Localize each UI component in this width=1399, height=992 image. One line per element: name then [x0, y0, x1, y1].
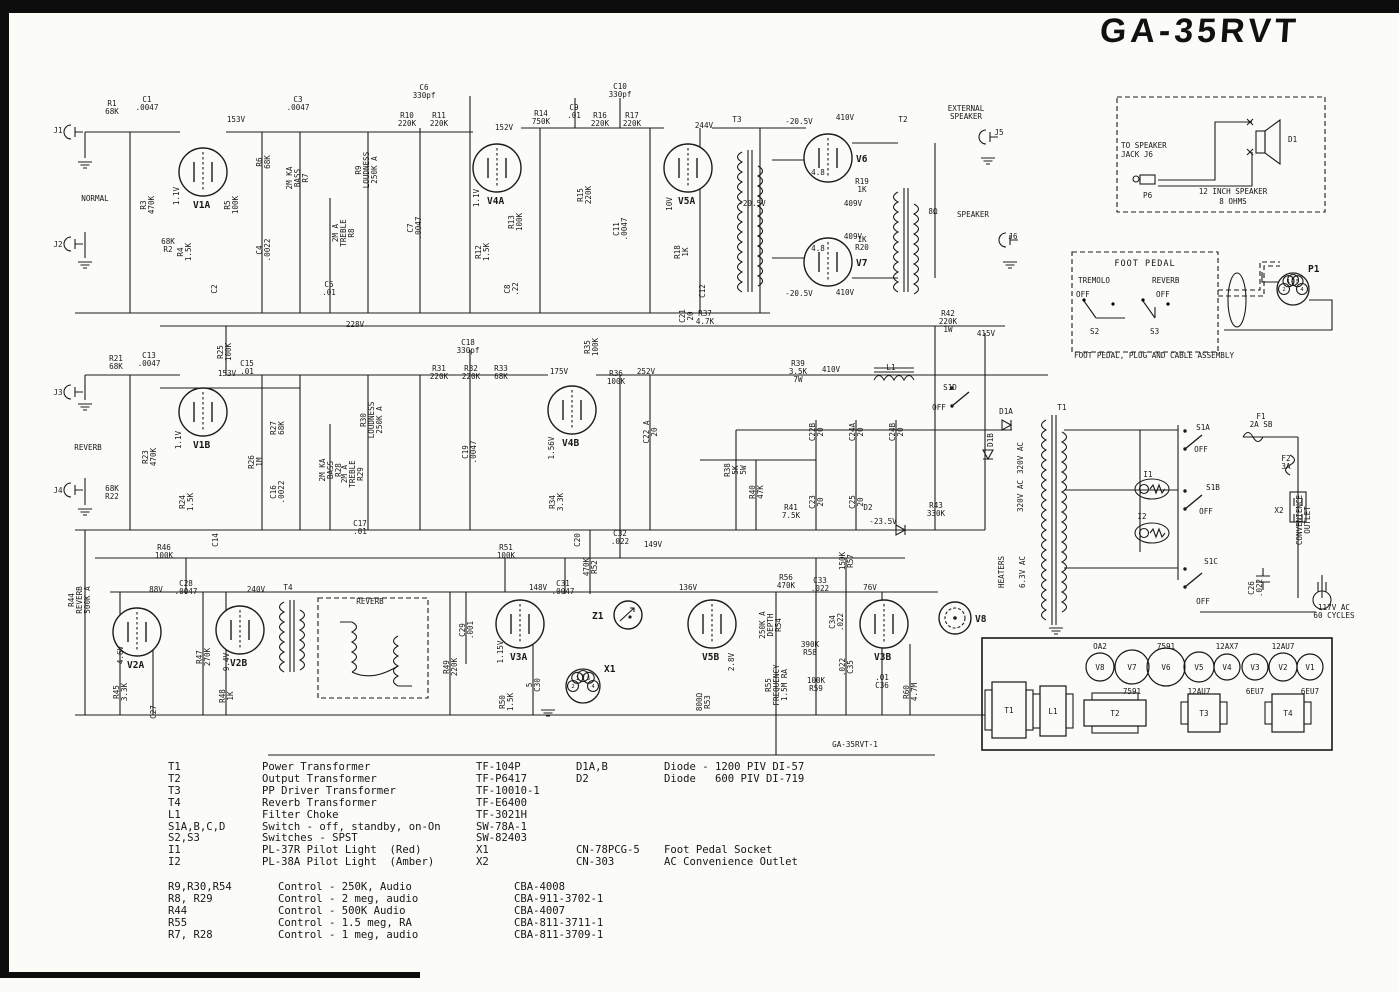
- component-label: R14750K: [532, 109, 551, 126]
- vacuum-tube: V3B: [860, 600, 908, 663]
- component-label: C31.0047: [552, 579, 575, 596]
- component-label: C4.0022: [255, 239, 272, 262]
- ground-icon: [78, 509, 92, 515]
- component-label: 4.6V: [116, 645, 125, 664]
- tremolo-off-label: OFF: [1076, 290, 1090, 299]
- socket-pin-number: 1: [576, 676, 579, 682]
- parts-list-cell: [576, 810, 664, 822]
- component-label: 470KR52: [582, 557, 599, 576]
- component-label: R46100K: [155, 543, 174, 560]
- component-label: 250K ADEPTHR54: [758, 611, 783, 639]
- speaker-plug-label: P6: [1143, 191, 1153, 200]
- component-label: J1: [53, 126, 63, 135]
- chassis-transformer-name: T1: [1004, 706, 1014, 715]
- socket-x1: 32154X1: [566, 664, 616, 703]
- component-label: 415V: [977, 329, 996, 338]
- coil-winding: [394, 636, 399, 686]
- jack-icon: [64, 125, 83, 139]
- component-label: L1: [886, 363, 896, 372]
- component-label: J4: [53, 486, 63, 495]
- component-label: 76V: [863, 583, 877, 592]
- parts-list-cell: I2: [168, 857, 262, 869]
- tube-label: V5B: [702, 652, 719, 663]
- chassis-tube-name: V2: [1278, 663, 1287, 672]
- component-label: C33.022: [811, 576, 829, 593]
- coil-winding: [738, 152, 743, 292]
- component-label: .022C35: [838, 658, 855, 676]
- parts-list-cell: TF-10010-1: [476, 786, 576, 798]
- socket-pin-number: 2: [1282, 287, 1285, 293]
- component-label: D2: [863, 503, 872, 512]
- component-label: S1D: [943, 383, 957, 392]
- chassis-tube: V412AX7: [1214, 642, 1240, 680]
- component-label: .01C36: [875, 673, 889, 690]
- component-label: 2M KABASSR7: [285, 166, 310, 189]
- component-label: R32220K: [462, 364, 481, 381]
- component-label: 2M ATREBLER29: [340, 460, 365, 488]
- component-label: C32.022: [611, 529, 629, 546]
- component-label: C24A20: [848, 422, 865, 441]
- tube-label: V1A: [193, 200, 210, 211]
- component-label: 320V AC: [1016, 442, 1025, 474]
- component-label: 1KR20: [855, 235, 869, 252]
- component-label: 2M ATREBLER8: [331, 219, 356, 247]
- chassis-tube-name: V3: [1250, 663, 1259, 672]
- component-label: R374.7K: [696, 309, 715, 326]
- switch-contact: [1183, 567, 1186, 570]
- component-label: 410V: [822, 365, 841, 374]
- parts-list-row: I2PL-38A Pilot Light (Amber)X2CN-303AC C…: [168, 857, 804, 869]
- chassis-tube-type: 12AU7: [1188, 687, 1211, 696]
- reverb-label: REVERB: [1152, 276, 1180, 285]
- component-label: OFF: [1199, 507, 1213, 516]
- component-label: R3368K: [494, 364, 508, 381]
- component-label: R10220K: [398, 111, 417, 128]
- wire-network: [75, 96, 1322, 755]
- component-label: C27: [149, 705, 158, 719]
- vacuum-tube: V8: [939, 602, 987, 634]
- component-label: C22B20: [808, 422, 825, 441]
- parts-list-cell: [576, 786, 664, 798]
- component-label: GA-35RVT-1: [832, 740, 878, 749]
- chassis-tube-type: 12AX7: [1216, 642, 1239, 651]
- diode-icon: [1002, 420, 1011, 430]
- chassis-tube: V36EU7: [1242, 654, 1268, 696]
- component-label: C5.01: [322, 280, 336, 297]
- component-label: T3: [732, 115, 741, 124]
- speaker-note-line2: JACK J6: [1121, 150, 1153, 159]
- foot-pedal-box: FOOT PEDAL TREMOLO REVERB OFF OFF S2 S3 …: [1072, 252, 1332, 360]
- component-label: 240V: [247, 585, 266, 594]
- component-label: 4.8: [811, 168, 825, 177]
- component-label: 410V: [836, 288, 855, 297]
- component-label: C1.0047: [136, 95, 159, 112]
- component-label: R16220K: [591, 111, 610, 128]
- cable-icon: [1228, 273, 1246, 327]
- chassis-tube-type: 12AU7: [1272, 642, 1295, 651]
- controls-list-cell: CBA-811-3709-1: [514, 930, 603, 942]
- component-label: 148V: [529, 583, 548, 592]
- component-label: R43330K: [927, 501, 946, 518]
- ground-icon: [78, 162, 92, 168]
- parts-list-cell: D2: [576, 774, 664, 786]
- tube-label: V4A: [487, 196, 504, 207]
- parts-list-cell: [664, 822, 804, 834]
- component-label: 5C30: [525, 678, 542, 692]
- component-label: C17.01: [353, 519, 367, 536]
- component-label: R41.5K: [176, 242, 193, 261]
- controls-list-cell: CBA-4007: [514, 906, 603, 918]
- component-label: C2: [210, 284, 219, 293]
- parts-list-row: L1Filter ChokeTF-3021H: [168, 810, 804, 822]
- socket-pin-number: 2: [571, 684, 574, 690]
- parts-list-cell: TF-3021H: [476, 810, 576, 822]
- speaker-note-line1: TO SPEAKER: [1121, 141, 1167, 150]
- component-label: C34.022: [828, 613, 845, 631]
- component-label: C18330pf: [457, 338, 480, 355]
- component-label: D1A: [999, 407, 1013, 416]
- component-label: -20.5V: [738, 199, 766, 208]
- component-label: REVERB: [74, 443, 102, 452]
- chassis-tube-type: 7591: [1123, 687, 1142, 696]
- parts-list-cell: Reverb Transformer: [262, 798, 476, 810]
- speaker-assembly-box: TO SPEAKER JACK J6 P6 D1 12 INCH SPEAKER…: [1117, 97, 1325, 212]
- parts-list-cell: [664, 798, 804, 810]
- component-label: 4.8: [811, 244, 825, 253]
- component-label: R42220K1W: [939, 309, 958, 334]
- foot-pedal-caption: FOOT PEDAL, PLUG AND CABLE ASSEMBLY: [1074, 351, 1234, 360]
- component-label: 1.15V: [496, 640, 505, 663]
- tube-label: V2A: [127, 660, 144, 671]
- component-label: 152V: [495, 123, 514, 132]
- component-label: 409V: [844, 199, 863, 208]
- tube-label: Z1: [592, 611, 604, 622]
- component-label: R181K: [673, 245, 690, 259]
- component-label: R36100K: [607, 369, 626, 386]
- component-label: R35100K: [583, 337, 600, 356]
- ground-icon: [981, 158, 995, 164]
- chassis-tube: V212AU7: [1269, 642, 1297, 681]
- component-label: 68KR2: [161, 237, 175, 254]
- chassis-transformer-name: T2: [1110, 709, 1119, 718]
- component-label: C29.001: [458, 620, 475, 639]
- tube-label: V8: [975, 614, 987, 625]
- chassis-tube-name: V8: [1095, 663, 1105, 672]
- component-label: OFF: [1194, 445, 1208, 454]
- parts-list-cell: I1: [168, 845, 262, 857]
- component-label: R453.3K: [112, 682, 129, 701]
- component-label: C16.0022: [269, 481, 286, 504]
- controls-list-cell: R44: [168, 906, 278, 918]
- socket-pin-number: 1: [1287, 279, 1290, 285]
- tube-label: V7: [856, 258, 867, 269]
- controls-list-row: R55Control - 1.5 meg, RACBA-811-3711-1: [168, 918, 603, 930]
- chassis-transformer: T4: [1265, 694, 1311, 732]
- controls-list-cell: CBA-811-3711-1: [514, 918, 603, 930]
- component-label: C13.0047: [138, 351, 161, 368]
- component-label: 88V: [149, 585, 163, 594]
- component-label: R168K: [105, 99, 119, 116]
- component-label: C2320: [808, 495, 825, 509]
- component-label: 6.3V AC: [1018, 556, 1027, 588]
- component-label: 228V: [346, 320, 365, 329]
- coil-winding: [352, 622, 357, 672]
- tube-label: V3A: [510, 652, 527, 663]
- parts-list-cell: CN-303: [576, 857, 664, 869]
- parts-list-cell: T4: [168, 798, 262, 810]
- component-label: C24B20: [888, 422, 905, 441]
- component-label: C2120: [678, 309, 695, 323]
- component-label: R2768K: [269, 421, 286, 435]
- component-label: T2: [898, 115, 907, 124]
- component-label: J5: [994, 128, 1003, 137]
- chassis-tube-type: 6EU7: [1246, 687, 1264, 696]
- switch-s2-label: S2: [1090, 327, 1099, 336]
- component-label: NORMAL: [81, 194, 109, 203]
- component-label: OFF: [932, 403, 946, 412]
- parts-list-cell: [576, 798, 664, 810]
- socket-label: X1: [604, 664, 616, 675]
- jack-icon: [64, 385, 83, 399]
- component-label: R23470K: [141, 447, 158, 466]
- component-label: C19.0047: [461, 441, 478, 464]
- chassis-tube: V67591: [1147, 642, 1185, 686]
- parts-list-cell: Diode 600 PIV DI-719: [664, 774, 804, 786]
- chassis-tube: V16EU7: [1297, 654, 1323, 696]
- component-label: 68KR22: [105, 484, 119, 501]
- component-label: 2.8V: [727, 652, 736, 671]
- component-label: C10330pf: [609, 82, 632, 99]
- parts-list-cell: S2,S3: [168, 833, 262, 845]
- parts-list-cell: [576, 822, 664, 834]
- component-label: 410V: [836, 113, 855, 122]
- component-label: C9.01: [567, 103, 581, 120]
- speaker-spec2: 8 OHMS: [1219, 197, 1247, 206]
- parts-list-cell: [664, 810, 804, 822]
- component-label: R501.5K: [498, 692, 515, 711]
- switch-contact: [1183, 489, 1186, 492]
- coil-winding: [894, 192, 899, 292]
- controls-list-cell: R7, R28: [168, 930, 278, 942]
- ground-icon: [78, 404, 92, 410]
- coil-winding: [300, 610, 305, 670]
- component-label: R191K: [855, 177, 869, 194]
- component-label: R121.5K: [474, 242, 491, 261]
- controls-list-cell: Control - 1 meg, audio: [278, 930, 514, 942]
- parts-list: T1Power TransformerTF-104PD1A,BDiode - 1…: [168, 762, 804, 869]
- component-label: S1B: [1206, 483, 1220, 492]
- component-label: R2168K: [109, 354, 123, 371]
- chassis-transformer-name: L1: [1048, 707, 1058, 716]
- component-label: S1C: [1204, 557, 1218, 566]
- switch-lever: [952, 392, 969, 406]
- tremolo-label: TREMOLO: [1078, 276, 1110, 285]
- component-label: CONVENIENCEOUTLET: [1295, 494, 1312, 545]
- component-label: C11.0047: [612, 218, 629, 241]
- component-label: C28.0047: [175, 579, 198, 596]
- ground-icon: [78, 262, 92, 268]
- jack-plug-icon: [1140, 175, 1155, 184]
- component-label: 252V: [637, 367, 656, 376]
- chassis-tube-type: OA2: [1093, 642, 1107, 651]
- parts-list-cell: SW-82403: [476, 833, 576, 845]
- chassis-tube-type: 7591: [1157, 642, 1176, 651]
- controls-list-cell: R55: [168, 918, 278, 930]
- component-label: R4047K: [748, 485, 765, 499]
- component-label: X2: [1274, 506, 1283, 515]
- component-label: EXTERNALSPEAKER: [948, 104, 985, 121]
- parts-list-cell: Filter Choke: [262, 810, 476, 822]
- component-label: I2: [1137, 512, 1146, 521]
- component-label: R11220K: [430, 111, 449, 128]
- jack-icon: [64, 483, 83, 497]
- chassis-tube-name: V5: [1194, 663, 1203, 672]
- component-label: D1B: [986, 433, 995, 447]
- switch-s3-label: S3: [1150, 327, 1159, 336]
- component-label: 136V: [679, 583, 698, 592]
- component-label: R51100K: [497, 543, 516, 560]
- component-label: R25100K: [216, 342, 233, 361]
- component-label: SPEAKER: [957, 210, 989, 219]
- controls-list-row: R44Control - 500K AudioCBA-4007: [168, 906, 603, 918]
- vacuum-tube: V1A: [179, 148, 227, 211]
- component-label: 150KR57: [838, 551, 855, 570]
- chassis-tube: V512AU7: [1184, 652, 1214, 696]
- component-label: -20.5V: [785, 289, 813, 298]
- component-label: -20.5V: [785, 117, 813, 126]
- component-label: R17220K: [623, 111, 642, 128]
- switch-lever: [1185, 573, 1202, 587]
- jack-icon: [64, 237, 83, 251]
- component-label: 1.56V: [547, 436, 556, 459]
- component-label: R9LOUDNESS250K A: [354, 151, 379, 188]
- socket-p1: 32154P1: [1277, 264, 1320, 305]
- component-label: J2: [53, 240, 62, 249]
- component-label: C22 A20: [642, 420, 659, 443]
- chassis-layout-box: V8OA2V77591V67591V512AU7V412AX7V36EU7V21…: [982, 638, 1332, 750]
- controls-list-cell: Control - 500K Audio: [278, 906, 514, 918]
- coil-winding: [874, 376, 914, 381]
- coil-winding: [280, 602, 285, 672]
- component-label: C15.01: [240, 359, 254, 376]
- component-label: R55FREQUENCY1.5M RA: [764, 664, 789, 706]
- coil-winding: [914, 204, 919, 294]
- controls-list-cell: Control - 1.5 meg, RA: [278, 918, 514, 930]
- speaker-icon: [1256, 131, 1265, 153]
- component-label: C3.0047: [287, 95, 310, 112]
- component-label: 153V: [218, 369, 237, 378]
- controls-list: R9,R30,R54Control - 250K, AudioCBA-4008R…: [168, 882, 603, 942]
- tube-label: V1B: [193, 440, 210, 451]
- parts-list-cell: T3: [168, 786, 262, 798]
- component-label: R15220K: [576, 185, 593, 204]
- parts-list-cell: PP Driver Transformer: [262, 786, 476, 798]
- component-label: I1: [1143, 470, 1153, 479]
- tube-label: V6: [856, 154, 868, 165]
- parts-list-cell: X1: [476, 845, 576, 857]
- component-label: -23.5V: [869, 517, 897, 526]
- tube-label: V4B: [562, 438, 579, 449]
- component-label: OFF: [1196, 597, 1210, 606]
- coil-winding: [1062, 432, 1067, 612]
- component-label: 1.1V: [472, 188, 481, 207]
- component-label: 175V: [550, 367, 569, 376]
- component-label: C20: [573, 533, 582, 547]
- chassis-tube-name: V7: [1127, 663, 1136, 672]
- component-label: F23A: [1281, 454, 1291, 471]
- component-label: 320V AC: [1016, 480, 1025, 512]
- switch-contact: [1183, 429, 1186, 432]
- component-label: R604.7M: [902, 682, 919, 701]
- component-label: J6: [1008, 232, 1018, 241]
- component-label: R31220K: [430, 364, 449, 381]
- component-label: C7.0047: [406, 217, 423, 240]
- component-label: T4: [283, 583, 293, 592]
- parts-list-cell: X2: [476, 857, 576, 869]
- component-label: R481K: [218, 689, 235, 703]
- chassis-tube-name: V1: [1305, 663, 1315, 672]
- component-label: C8.22: [503, 282, 520, 296]
- tube-label: V5A: [678, 196, 695, 207]
- chassis-transformer: T3: [1181, 694, 1227, 732]
- speaker-spec1: 12 INCH SPEAKER: [1199, 187, 1268, 196]
- chassis-transformer-name: T3: [1199, 709, 1208, 718]
- chassis-tube: V77591: [1115, 650, 1149, 696]
- component-label: 153V: [227, 115, 246, 124]
- component-label: S1A: [1196, 423, 1210, 432]
- ground-icon: [1003, 262, 1017, 268]
- component-label: R417.5K: [782, 503, 801, 520]
- chassis-tube-name: V4: [1222, 663, 1232, 672]
- component-label: 10V: [665, 197, 674, 211]
- chassis-transformer-name: T4: [1283, 709, 1293, 718]
- parts-list-cell: D1A,B: [576, 762, 664, 774]
- schematic-page: GA-35RVT V1AV4AV5AV6V7V1BV4BV2AV2BV3AV5B…: [0, 0, 1399, 992]
- component-label: R49220K: [442, 657, 459, 676]
- parts-list-cell: PL-38A Pilot Light (Amber): [262, 857, 476, 869]
- component-label: F12A SB: [1250, 412, 1273, 429]
- coil-winding: [1042, 420, 1047, 620]
- parts-list-cell: L1: [168, 810, 262, 822]
- socket-label: P1: [1308, 264, 1320, 275]
- component-label: 117V AC60 CYCLES: [1313, 603, 1355, 620]
- component-label: T1: [1057, 403, 1067, 412]
- component-label: R44REVERB500K A: [67, 586, 92, 614]
- reverb-off-label: OFF: [1156, 290, 1170, 299]
- component-label: C6330pf: [413, 83, 436, 100]
- component-label: 9.4V: [222, 652, 231, 671]
- tube-label: V3B: [874, 652, 891, 663]
- vacuum-tube: V1B: [179, 388, 227, 451]
- parts-list-cell: TF-E6400: [476, 798, 576, 810]
- component-label: REVERB: [356, 597, 384, 606]
- parts-list-cell: AC Convenience Outlet: [664, 857, 804, 869]
- chassis-tube-name: V6: [1161, 663, 1171, 672]
- component-label: R393.5K7W: [789, 359, 808, 384]
- component-label: 800ΩR53: [695, 692, 712, 711]
- component-label: 8Ω: [928, 207, 938, 216]
- component-label: 100KR59: [807, 676, 826, 693]
- controls-list-row: R7, R28Control - 1 meg, audioCBA-811-370…: [168, 930, 603, 942]
- component-label: 244V: [695, 121, 714, 130]
- component-label: 1.1V: [174, 430, 183, 449]
- component-label: HEATERS: [997, 556, 1006, 588]
- reverb-pan-box: [318, 598, 428, 698]
- component-label: R5100K: [223, 195, 240, 214]
- component-label: R30LOUDNESS250K A: [359, 401, 384, 438]
- parts-list-row: T4Reverb TransformerTF-E6400: [168, 798, 804, 810]
- component-label: C14: [211, 533, 220, 547]
